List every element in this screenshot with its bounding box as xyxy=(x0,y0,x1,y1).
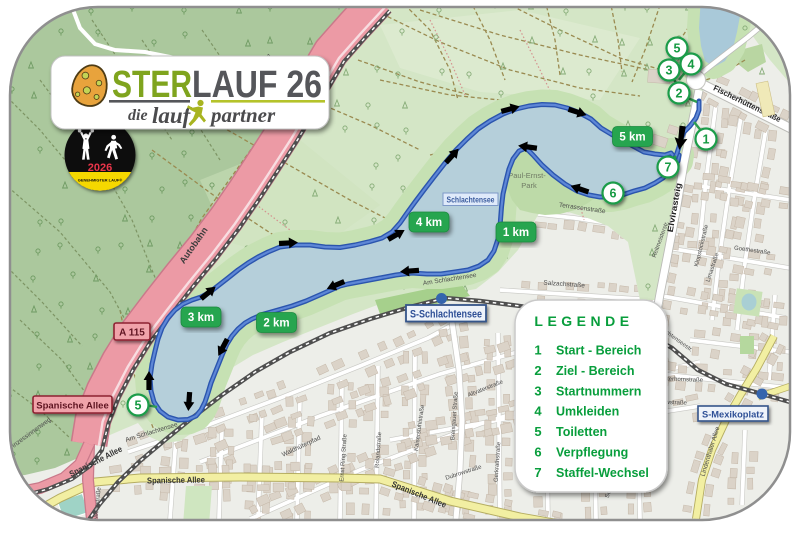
svg-text:Verpflegung: Verpflegung xyxy=(556,446,628,460)
svg-text:2026: 2026 xyxy=(88,162,112,174)
svg-text:Schlachtensee: Schlachtensee xyxy=(447,196,495,205)
svg-text:partner: partner xyxy=(209,103,276,127)
svg-text:die: die xyxy=(128,107,148,124)
svg-text:5: 5 xyxy=(674,42,681,56)
svg-text:Toiletten: Toiletten xyxy=(556,425,607,439)
svg-text:2: 2 xyxy=(534,363,541,378)
svg-text:Staffel-Wechsel: Staffel-Wechsel xyxy=(556,466,649,480)
svg-text:3: 3 xyxy=(666,64,673,78)
svg-text:LEGENDE: LEGENDE xyxy=(534,313,633,329)
svg-text:2: 2 xyxy=(676,87,683,101)
svg-text:1 km: 1 km xyxy=(503,227,529,239)
svg-text:S-Schlachtensee: S-Schlachtensee xyxy=(410,309,482,321)
svg-text:4 km: 4 km xyxy=(416,217,442,229)
svg-text:4: 4 xyxy=(534,404,542,419)
svg-text:6: 6 xyxy=(610,187,617,201)
svg-text:Umkleiden: Umkleiden xyxy=(556,405,619,419)
svg-text:Spanische Allee: Spanische Allee xyxy=(147,474,205,485)
svg-text:3: 3 xyxy=(534,383,541,398)
svg-text:5 km: 5 km xyxy=(619,132,645,144)
svg-text:A 115: A 115 xyxy=(119,328,145,339)
svg-text:5: 5 xyxy=(135,399,142,413)
svg-text:5: 5 xyxy=(534,424,541,439)
svg-text:Ziel - Bereich: Ziel - Bereich xyxy=(556,364,635,378)
svg-text:Startnummern: Startnummern xyxy=(556,384,641,398)
svg-text:7: 7 xyxy=(665,161,672,175)
svg-text:4: 4 xyxy=(688,58,695,72)
svg-text:6: 6 xyxy=(534,445,541,460)
svg-text:GENEHMIGTER LAUF®: GENEHMIGTER LAUF® xyxy=(78,178,123,183)
svg-text:Paul-Ernst-: Paul-Ernst- xyxy=(508,171,546,180)
svg-text:S-Mexikoplatz: S-Mexikoplatz xyxy=(702,410,764,421)
svg-text:Start - Bereich: Start - Bereich xyxy=(556,344,641,358)
svg-text:1: 1 xyxy=(703,133,710,147)
svg-text:2 km: 2 km xyxy=(263,318,289,330)
svg-text:Park: Park xyxy=(521,181,537,190)
svg-text:7: 7 xyxy=(534,465,541,480)
svg-text:LAUF 26: LAUF 26 xyxy=(192,64,322,106)
svg-text:lauf: lauf xyxy=(152,103,193,128)
svg-text:3 km: 3 km xyxy=(188,312,214,324)
svg-text:1: 1 xyxy=(534,343,541,358)
svg-text:Spanische Allee: Spanische Allee xyxy=(36,401,109,412)
svg-text:STER: STER xyxy=(112,64,192,106)
